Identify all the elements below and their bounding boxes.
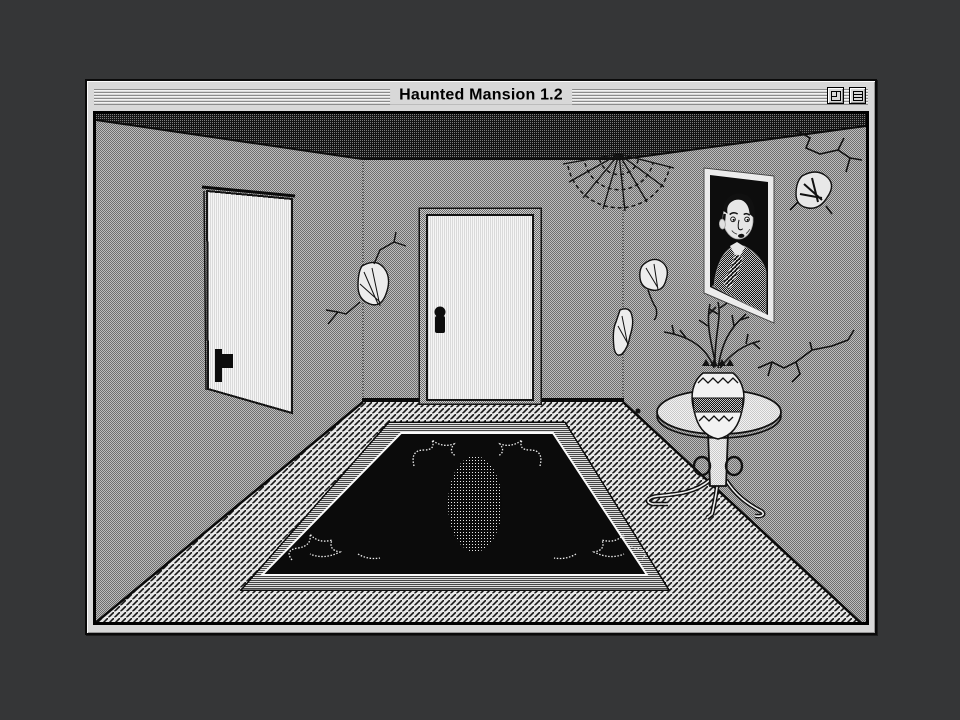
floor-mark [636, 409, 641, 414]
desktop: { "window": { "title": "Haunted Mansion … [0, 0, 960, 720]
left-door[interactable] [202, 187, 295, 413]
window-titlebar[interactable]: Haunted Mansion 1.2 [87, 81, 875, 111]
scene-frame [93, 111, 869, 625]
center-door-handle[interactable] [435, 307, 446, 318]
collapse-button[interactable] [849, 87, 866, 104]
window-controls [827, 87, 866, 104]
windowshade-icon [853, 91, 863, 101]
scene [96, 114, 866, 622]
rug-medallion[interactable] [448, 456, 502, 552]
left-door-handle[interactable] [215, 349, 222, 382]
zoom-box-icon [831, 91, 841, 101]
zoom-button[interactable] [827, 87, 844, 104]
window-title: Haunted Mansion 1.2 [390, 87, 572, 105]
table-column [708, 432, 728, 486]
center-door[interactable] [419, 208, 541, 404]
game-window: Haunted Mansion 1.2 [85, 79, 877, 635]
